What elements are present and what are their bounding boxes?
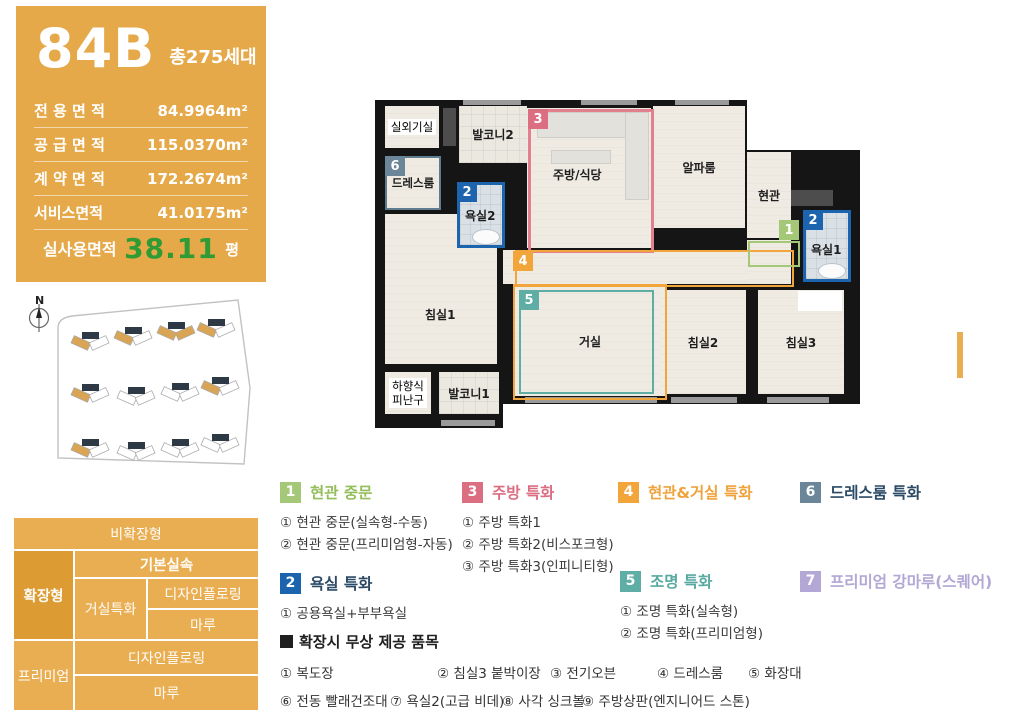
free-item: ④ 드레스룸 <box>657 662 723 682</box>
feature-item: ② 현관 중문(프리미엄형-자동) <box>280 534 453 556</box>
area-row: 공 급 면 적 115.0370m² <box>34 128 248 162</box>
option-cell-basic: 기본실속 <box>75 551 258 577</box>
shaft-block <box>443 108 456 146</box>
room-label-balcony2: 발코니2 <box>472 126 513 143</box>
option-cell-living-special: 거실특화 <box>75 579 146 639</box>
room-label-balcony1: 발코니1 <box>448 385 489 402</box>
option-cell-maru: 마루 <box>148 610 258 639</box>
free-item: ① 복도장 <box>280 662 334 682</box>
feature-block-dressroom: 6 드레스룸 특화 <box>800 481 921 503</box>
room-label-alpha: 알파룸 <box>682 159 715 176</box>
badge-corridor: 4 <box>513 251 533 271</box>
feature-title: 현관 중문 <box>310 481 372 503</box>
feature-badge: 1 <box>280 482 301 503</box>
badge-entrance-door: 1 <box>779 220 799 240</box>
badge-kitchen: 3 <box>528 109 548 129</box>
option-cell-maru: 마루 <box>75 676 258 710</box>
room-label-outdoor-unit: 실외기실 <box>388 119 436 135</box>
feature-block-entrance-living: 4 현관&거실 특화 <box>618 481 752 503</box>
kitchen-island <box>551 150 611 164</box>
badge-bath1: 2 <box>803 210 823 230</box>
window <box>463 100 521 105</box>
feature-item: ① 조명 특화(실속형) <box>620 601 763 623</box>
feature-badge: 4 <box>618 482 639 503</box>
free-items-title: 확장시 무상 제공 품목 <box>299 631 439 652</box>
area-table: 전 용 면 적 84.9964m² 공 급 면 적 115.0370m² 계 약… <box>34 94 248 230</box>
kitchen-counter <box>625 112 649 200</box>
room-label-bath1: 욕실1 <box>811 241 841 258</box>
feature-item: ② 주방 특화2(비스포크형) <box>462 534 614 556</box>
room-label-escape-hatch: 하향식 피난구 <box>389 378 427 408</box>
unit-info-panel: 84B 총275세대 전 용 면 적 84.9964m² 공 급 면 적 115… <box>16 6 266 282</box>
free-item: ⑦ 욕실2(고급 비데) <box>390 690 504 710</box>
area-label: 서비스면적 <box>34 202 103 223</box>
area-label: 전 용 면 적 <box>34 100 105 121</box>
room-alpha: 알파룸 <box>653 106 745 228</box>
feature-block-entrance-door: 1 현관 중문 ① 현관 중문(실속형-수동) ② 현관 중문(프리미엄형-자동… <box>280 481 453 556</box>
shaft-block <box>791 190 833 206</box>
area-value: 41.0175m² <box>157 204 248 222</box>
option-cell-design-flooring: 디자인플로링 <box>75 641 258 674</box>
room-label-living: 거실 <box>579 333 601 350</box>
entrance-hall <box>747 240 791 284</box>
badge-living: 5 <box>519 290 539 310</box>
area-row: 전 용 면 적 84.9964m² <box>34 94 248 128</box>
feature-item: ① 공용욕실+부부욕실 <box>280 603 407 625</box>
page: 84B 총275세대 전 용 면 적 84.9964m² 공 급 면 적 115… <box>0 0 1024 714</box>
room-kitchen: 주방/식당 <box>527 108 651 248</box>
room-bed3: 침실3 <box>758 290 844 394</box>
area-value: 115.0370m² <box>147 136 248 154</box>
feature-badge: 3 <box>462 482 483 503</box>
site-plan: N <box>18 292 270 494</box>
feature-title: 프리미엄 강마루(스퀘어) <box>830 570 992 592</box>
compass-icon: N <box>30 294 49 332</box>
free-item: ② 침실3 붙박이장 <box>437 662 541 682</box>
actual-use-row: 실사용면적 38.11 평 <box>16 232 266 265</box>
feature-title: 현관&거실 특화 <box>648 481 752 503</box>
actual-use-unit: 평 <box>225 241 239 259</box>
feature-title: 주방 특화 <box>492 481 554 503</box>
room-label-bed1: 침실1 <box>425 306 455 323</box>
area-value: 172.2674m² <box>147 170 248 188</box>
free-items-header: 확장시 무상 제공 품목 <box>280 631 439 652</box>
free-item: ⑤ 화장대 <box>748 662 802 682</box>
free-item: ⑧ 사각 싱크볼 <box>502 690 585 710</box>
feature-item: ② 조명 특화(프리미엄형) <box>620 623 763 645</box>
area-label: 계 약 면 적 <box>34 168 105 189</box>
feature-item: ① 주방 특화1 <box>462 512 614 534</box>
option-cell-expanded: 확장형 <box>14 551 73 639</box>
bath-fixture <box>472 229 500 245</box>
room-bed2: 침실2 <box>660 290 746 394</box>
area-row: 서비스면적 41.0175m² <box>34 196 248 230</box>
badge-dress: 6 <box>385 156 405 176</box>
total-households: 총275세대 <box>169 43 256 69</box>
window <box>525 397 657 403</box>
room-outdoor-unit: 실외기실 <box>385 106 439 148</box>
feature-title: 드레스룸 특화 <box>830 481 921 503</box>
free-item: ⑨ 주방상판(엔지니어드 스톤) <box>582 690 750 710</box>
free-item: ⑥ 전동 빨래건조대 <box>280 690 388 710</box>
feature-item: ① 현관 중문(실속형-수동) <box>280 512 453 534</box>
option-cell-design-flooring: 디자인플로링 <box>148 579 258 608</box>
area-row: 계 약 면 적 172.2674m² <box>34 162 248 196</box>
actual-use-label: 실사용면적 <box>43 240 117 259</box>
window <box>581 100 637 105</box>
feature-badge: 2 <box>280 573 301 594</box>
free-item: ③ 전기오븐 <box>550 662 616 682</box>
room-escape-hatch: 하향식 피난구 <box>385 372 431 414</box>
room-balcony2: 발코니2 <box>459 106 527 163</box>
window <box>671 397 737 403</box>
window <box>767 397 829 403</box>
options-table: 비확장형 확장형 기본실속 거실특화 디자인플로링 마루 프리미엄 디자인플로링… <box>14 518 258 710</box>
room-label-kitchen: 주방/식당 <box>553 166 602 183</box>
window <box>675 100 729 105</box>
feature-badge: 5 <box>620 571 641 592</box>
room-label-bath2: 욕실2 <box>465 207 495 224</box>
feature-block-premium-floor: 7 프리미엄 강마루(스퀘어) <box>800 570 992 592</box>
bath-fixture <box>818 263 846 279</box>
unit-type-code: 84B <box>36 20 155 78</box>
room-label-entrance: 현관 <box>758 187 780 204</box>
feature-block-kitchen: 3 주방 특화 ① 주방 특화1 ② 주방 특화2(비스포크형) ③ 주방 특화… <box>462 481 614 578</box>
room-label-bed2: 침실2 <box>688 334 718 351</box>
closet <box>798 291 842 311</box>
feature-item: ③ 주방 특화3(인피니티형) <box>462 556 614 578</box>
room-label-dress: 드레스룸 <box>392 175 434 191</box>
feature-title: 욕실 특화 <box>310 572 372 594</box>
feature-block-lighting: 5 조명 특화 ① 조명 특화(실속형) ② 조명 특화(프리미엄형) <box>620 570 763 645</box>
room-label-bed3: 침실3 <box>786 334 816 351</box>
area-label: 공 급 면 적 <box>34 134 105 155</box>
option-cell-non-expanded: 비확장형 <box>14 518 258 549</box>
feature-badge: 6 <box>800 482 821 503</box>
square-bullet-icon <box>280 635 293 648</box>
badge-bath2: 2 <box>457 182 477 202</box>
floor-plan: 실외기실 발코니2 주방/식당 알파룸 현관 침실1 거실 침실2 <box>375 100 860 428</box>
window <box>441 420 495 426</box>
room-balcony1: 발코니1 <box>439 372 499 414</box>
feature-badge: 7 <box>800 571 821 592</box>
option-cell-premium: 프리미엄 <box>14 641 73 710</box>
area-value: 84.9964m² <box>157 102 248 120</box>
actual-use-value: 38.11 <box>124 232 218 265</box>
feature-block-bath: 2 욕실 특화 ① 공용욕실+부부욕실 <box>280 572 407 625</box>
compass-north-label: N <box>35 294 44 307</box>
feature-title: 조명 특화 <box>650 570 712 592</box>
accent-bar <box>957 332 963 378</box>
